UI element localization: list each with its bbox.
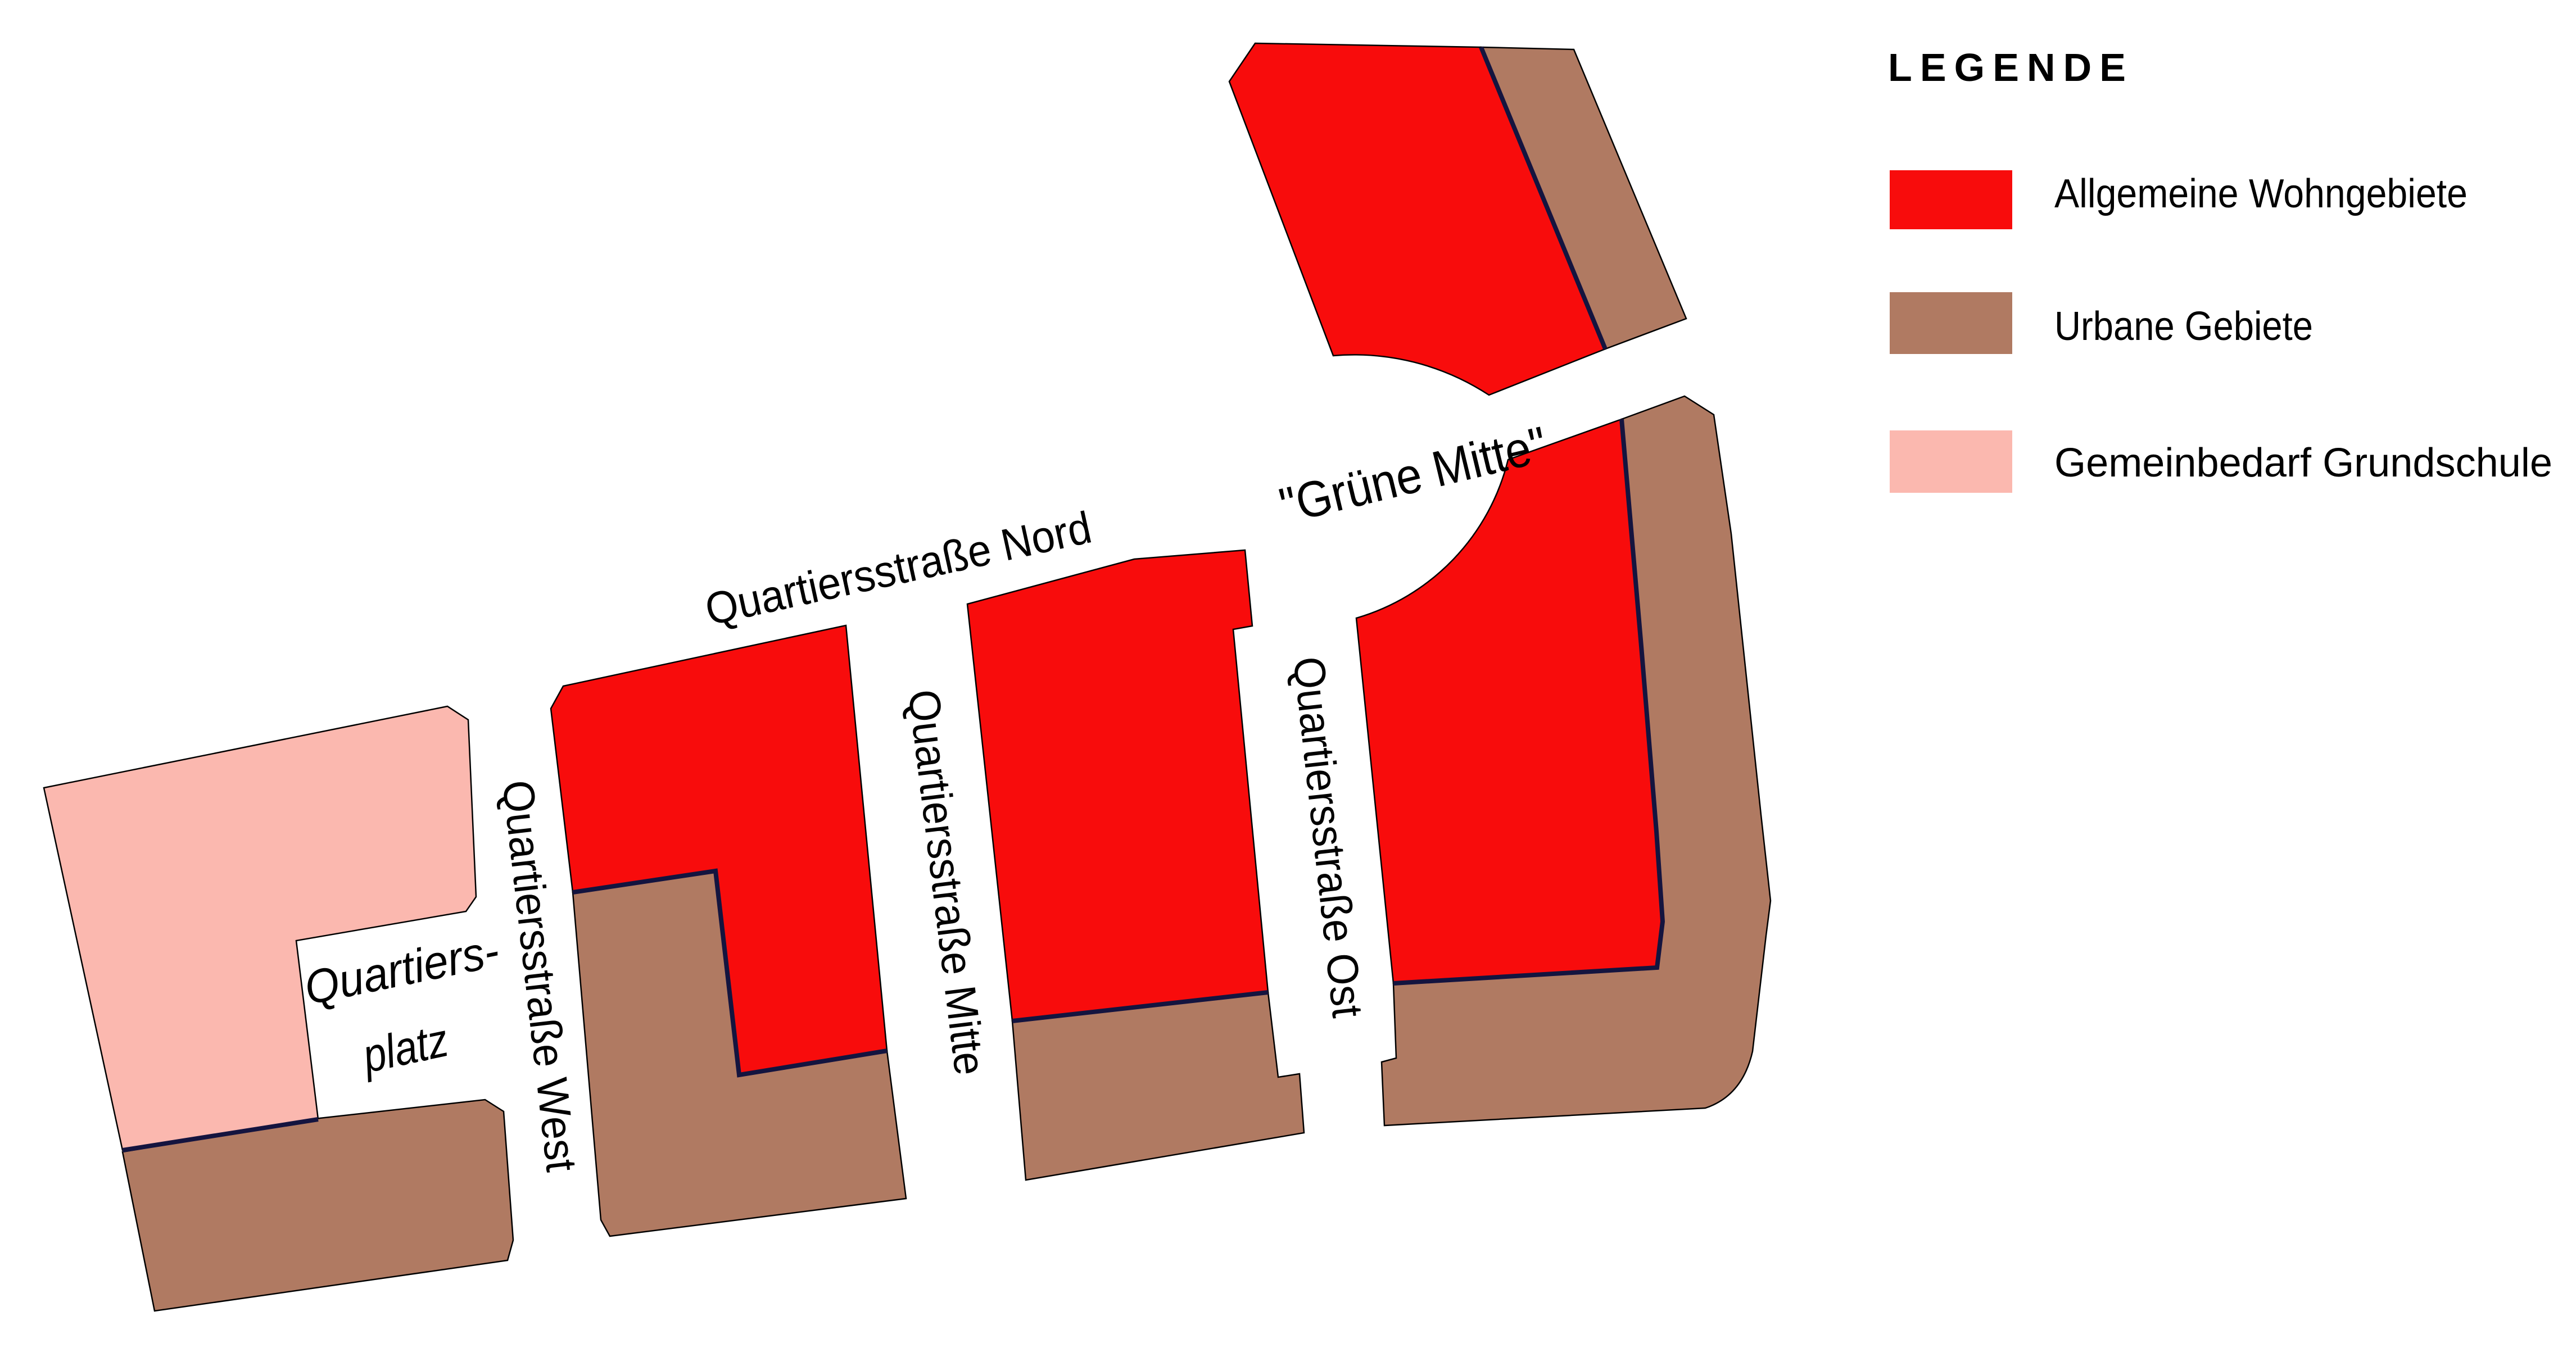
svg-text:LEGENDE: LEGENDE xyxy=(1888,46,2134,89)
svg-text:Urbane Gebiete: Urbane Gebiete xyxy=(2054,304,2313,349)
svg-text:Allgemeine Wohngebiete: Allgemeine Wohngebiete xyxy=(2054,171,2468,216)
svg-text:Gemeinbedarf Grundschule: Gemeinbedarf Grundschule xyxy=(2054,441,2552,485)
